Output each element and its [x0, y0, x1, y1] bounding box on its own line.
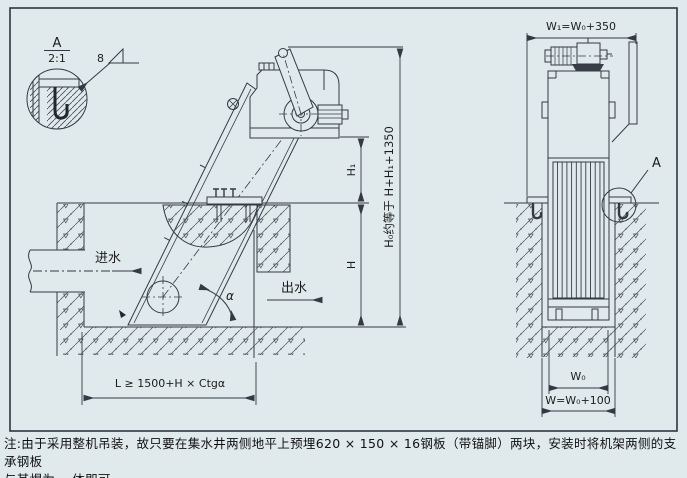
dim-w0-label: W₀ [570, 370, 586, 383]
lifting-lug-right [609, 102, 615, 118]
inlet-pipe [29, 250, 141, 292]
drawing-page: A 2:1 8 进水 出水 [0, 0, 687, 478]
side-mounting-plate [612, 42, 637, 142]
inlet-label: 进水 [95, 251, 121, 266]
engineering-drawing: A 2:1 8 进水 出水 [0, 0, 687, 478]
outlet-label: 出水 [281, 281, 307, 296]
detail-a-label: A [53, 36, 62, 51]
bottom-sprocket [142, 276, 184, 318]
installation-note: 注:由于采用整机吊装，故只要在集水井两侧地平上预埋620 × 150 × 16钢… [4, 435, 682, 478]
lifting-lug-left [542, 102, 548, 118]
weld-size-label: 8 [97, 52, 104, 65]
screen-frame-front [542, 71, 615, 320]
weld-leader-line [80, 63, 110, 89]
detail-a-view: A 2:1 8 [27, 36, 139, 130]
note-line-1: 注:由于采用整机吊装，故只要在集水井两侧地平上预埋620 × 150 × 16钢… [4, 435, 682, 471]
dim-w1-label: W₁=W₀+350 [546, 20, 616, 33]
detail-a-scale: 2:1 [48, 52, 66, 65]
detail-a-callout-leader [631, 170, 648, 193]
bar-rack [553, 162, 604, 298]
weld-symbol-icon [109, 49, 123, 63]
note-line-2: 与其焊为一 体即可。 [4, 471, 682, 478]
alpha-label: α [226, 289, 234, 303]
dim-h0-label: H₀约等于 H+H₁+1350 [382, 126, 396, 248]
dim-w-label: W=W₀+100 [545, 394, 611, 407]
front-view: A [504, 38, 661, 358]
dim-l-label: L ≥ 1500+H × Ctgα [115, 377, 225, 390]
channel-step-block [257, 205, 290, 272]
dim-h-label: H [345, 261, 358, 269]
side-motor [318, 105, 342, 124]
detail-a-callout-label: A [652, 156, 661, 171]
foundation-bowl [163, 189, 262, 247]
front-motor-assembly [545, 38, 613, 71]
dim-h1-label: H₁ [345, 164, 358, 177]
